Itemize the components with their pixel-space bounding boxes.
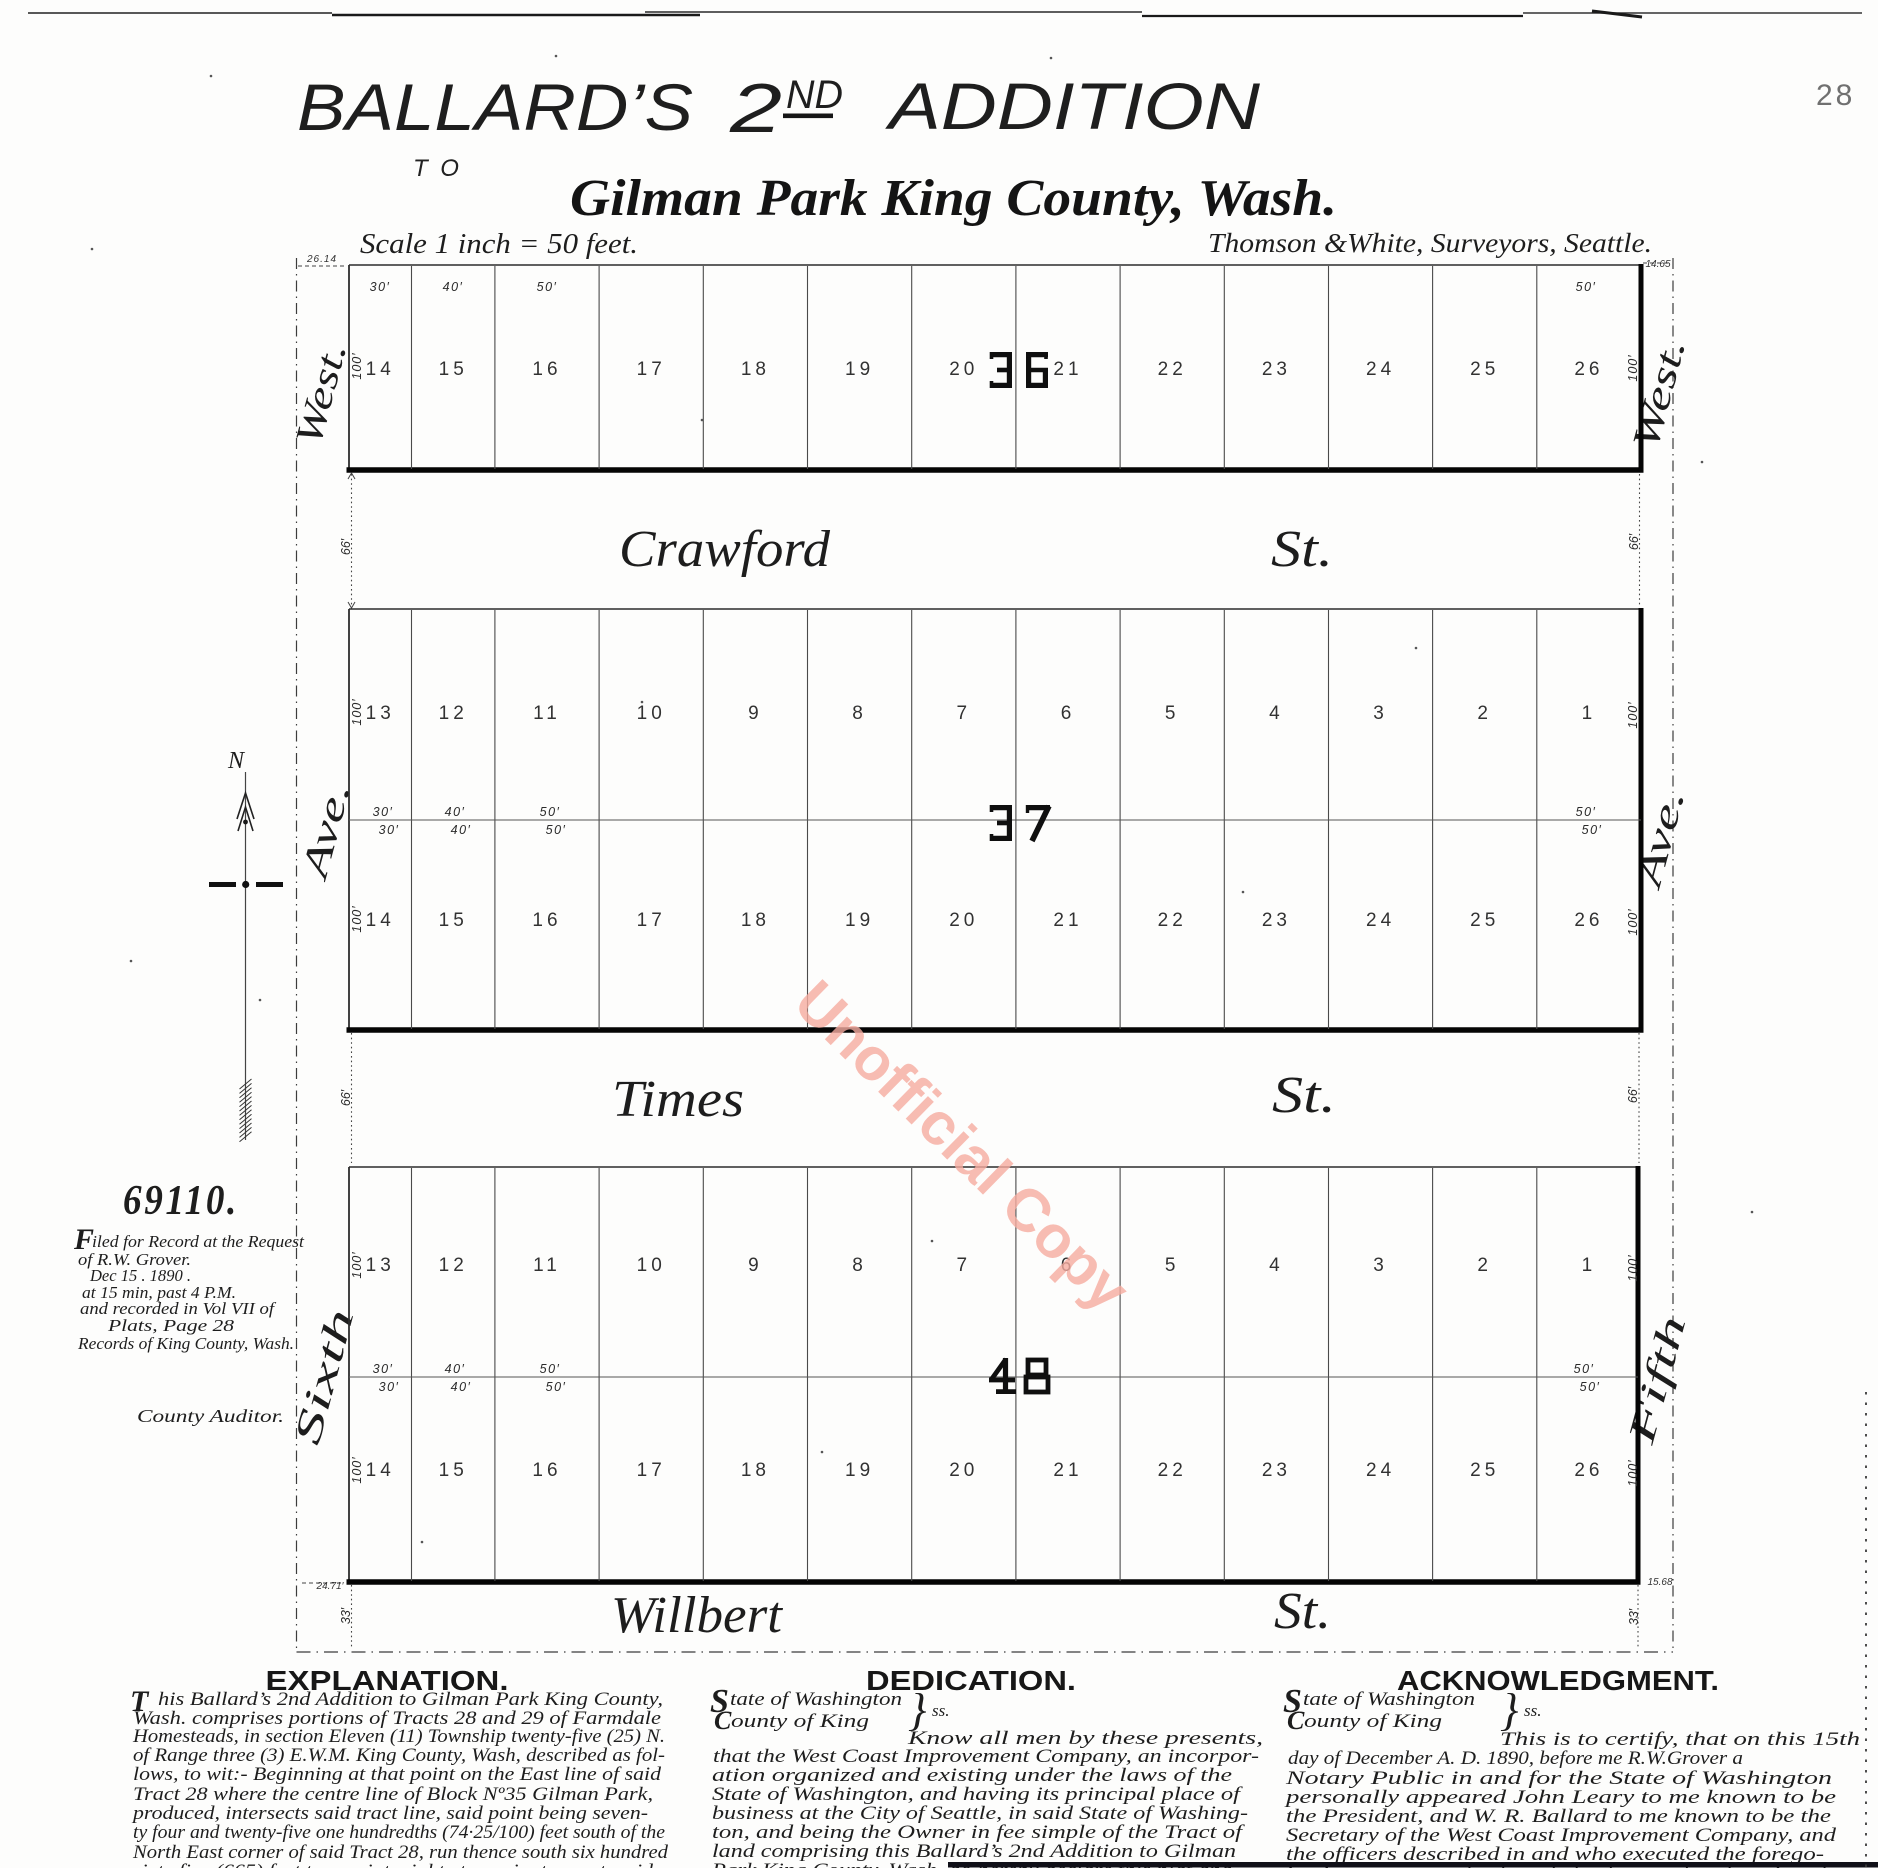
svg-text:100′: 100′ (350, 698, 364, 725)
svg-text:13: 13 (366, 1255, 395, 1276)
svg-text:15: 15 (439, 1460, 468, 1481)
svg-text:St.: St. (1274, 1583, 1331, 1640)
svg-text:5: 5 (1165, 1255, 1180, 1276)
svg-text:lows, to wit:- Beginning at th: lows, to wit:- Beginning at that point o… (133, 1764, 662, 1785)
svg-text:50′: 50′ (546, 823, 567, 837)
svg-text:ty four and twenty-five one hu: ty four and twenty-five one hundredths (… (133, 1822, 665, 1843)
svg-text:ation organized and existing u: ation organized and existing under the l… (712, 1765, 1232, 1786)
svg-text:26.14: 26.14 (306, 254, 337, 265)
svg-text:C: C (714, 1706, 732, 1735)
svg-text:tate of Washington: tate of Washington (1303, 1689, 1475, 1710)
svg-text:17: 17 (637, 1460, 666, 1481)
svg-text:6: 6 (1061, 703, 1076, 724)
svg-text:25: 25 (1470, 910, 1499, 931)
svg-text:66′: 66′ (339, 1089, 353, 1106)
svg-text:17: 17 (637, 910, 666, 931)
svg-text:100′: 100′ (350, 1251, 364, 1278)
svg-text:23: 23 (1262, 359, 1291, 380)
svg-text:15: 15 (439, 359, 468, 380)
svg-text:2: 2 (729, 69, 782, 147)
svg-text:10: 10 (637, 1255, 666, 1276)
svg-text:26: 26 (1574, 910, 1603, 931)
svg-text:3: 3 (1373, 1255, 1388, 1276)
svg-text:100′: 100′ (1626, 908, 1640, 935)
svg-text:30′: 30′ (379, 823, 400, 837)
svg-text:the officers described in and: the officers described in and who execut… (1286, 1844, 1824, 1865)
svg-text:9: 9 (748, 1255, 763, 1276)
svg-text:18: 18 (741, 910, 770, 931)
svg-text:22: 22 (1158, 910, 1187, 931)
svg-text:County Auditor.: County Auditor. (137, 1406, 284, 1426)
svg-text:that the West Coast Improvemen: that the West Coast Improvement Company,… (713, 1746, 1259, 1767)
svg-text:50′: 50′ (1576, 805, 1597, 819)
svg-text:1: 1 (1582, 703, 1597, 724)
svg-text:15: 15 (439, 910, 468, 931)
svg-text:day of December A. D. 1890, be: day of December A. D. 1890, before me R.… (1288, 1748, 1743, 1769)
svg-text:40′: 40′ (445, 805, 466, 819)
svg-text:7: 7 (957, 703, 972, 724)
svg-text:2: 2 (1477, 703, 1492, 724)
svg-text:21: 21 (1053, 359, 1082, 380)
svg-text:7: 7 (957, 1255, 972, 1276)
svg-text:25: 25 (1470, 359, 1499, 380)
svg-text:23: 23 (1262, 910, 1291, 931)
svg-text:19: 19 (845, 910, 874, 931)
svg-text:33′: 33′ (339, 1607, 353, 1624)
svg-text:Records of King County, Wash.: Records of King County, Wash. (77, 1334, 294, 1353)
svg-text:66′: 66′ (1627, 533, 1641, 550)
svg-text:12: 12 (439, 1255, 468, 1276)
svg-text:17: 17 (637, 359, 666, 380)
svg-text:66′: 66′ (1626, 1086, 1640, 1103)
svg-text:personally appeared John Leary: personally appeared John Leary to me kno… (1283, 1787, 1836, 1808)
svg-text:1: 1 (1582, 1255, 1597, 1276)
svg-text:13: 13 (366, 703, 395, 724)
svg-text:28: 28 (1816, 79, 1855, 112)
svg-text:18: 18 (741, 359, 770, 380)
svg-text:produced, intersects said trac: produced, intersects said tract line, sa… (131, 1803, 648, 1824)
svg-text:24.71′: 24.71′ (316, 1581, 345, 1592)
svg-text:21: 21 (1053, 910, 1082, 931)
svg-text:16: 16 (532, 359, 561, 380)
svg-text:2: 2 (1477, 1255, 1492, 1276)
svg-text:100′: 100′ (350, 1456, 364, 1483)
svg-text:24: 24 (1366, 1460, 1395, 1481)
svg-text:30′: 30′ (379, 1380, 400, 1394)
svg-text:16: 16 (532, 1460, 561, 1481)
svg-text:C: C (1287, 1706, 1305, 1735)
svg-text:100′: 100′ (350, 352, 364, 379)
svg-text:19: 19 (845, 1460, 874, 1481)
svg-text:St.: St. (1271, 521, 1333, 578)
svg-text:22: 22 (1158, 1460, 1187, 1481)
svg-text:}: } (1500, 1684, 1518, 1735)
svg-text:20: 20 (949, 910, 978, 931)
svg-text:West.: West. (1625, 334, 1695, 453)
svg-text:21: 21 (1053, 1460, 1082, 1481)
svg-text:24: 24 (1366, 359, 1395, 380)
svg-text:24: 24 (1366, 910, 1395, 931)
svg-text:30′: 30′ (373, 805, 394, 819)
svg-text:land comprising this Ballard’s: land comprising this Ballard’s 2nd Addit… (712, 1841, 1236, 1862)
svg-text:100′: 100′ (350, 905, 364, 932)
svg-text:ton, and being the Owner in fe: ton, and being the Owner in fee simple o… (712, 1822, 1246, 1843)
svg-text:Scale 1 inch = 50 feet.: Scale 1 inch = 50 feet. (360, 229, 638, 260)
svg-text:Secretary of the West Coast Im: Secretary of the West Coast Improvement … (1286, 1825, 1837, 1846)
svg-text:100′: 100′ (1626, 354, 1640, 381)
svg-text:3: 3 (1373, 703, 1388, 724)
svg-text:20: 20 (949, 1460, 978, 1481)
svg-text:ADDITION: ADDITION (884, 69, 1260, 143)
svg-text:100′: 100′ (1626, 701, 1640, 728)
svg-text:TO: TO (413, 155, 472, 182)
svg-text:BALLARD’S: BALLARD’S (297, 70, 693, 144)
svg-text:tate of Washington: tate of Washington (730, 1689, 902, 1710)
svg-text:14.65: 14.65 (1645, 259, 1670, 270)
svg-text:50′: 50′ (546, 1380, 567, 1394)
svg-text:9: 9 (748, 703, 763, 724)
svg-text:30′: 30′ (373, 1362, 394, 1376)
svg-text:Notary Public in and for the S: Notary Public in and for the State of Wa… (1285, 1768, 1832, 1789)
svg-text:of Range three (3) E.W.M. King: of Range three (3) E.W.M. King County, W… (133, 1745, 665, 1766)
svg-text:69110.: 69110. (123, 1178, 239, 1224)
svg-text:40′: 40′ (451, 823, 472, 837)
svg-text:North East corner of said Trac: North East corner of said Tract 28, run … (132, 1842, 669, 1863)
svg-text:ND: ND (786, 73, 843, 117)
svg-text:Fifth: Fifth (1620, 1312, 1695, 1450)
svg-text:16: 16 (532, 910, 561, 931)
svg-text:ss.: ss. (1524, 1701, 1541, 1720)
svg-text:4: 4 (1269, 1255, 1284, 1276)
svg-text:66′: 66′ (339, 538, 353, 555)
svg-text:4: 4 (1269, 703, 1284, 724)
svg-text:N: N (227, 748, 246, 774)
svg-text:15.68: 15.68 (1647, 1577, 1672, 1588)
svg-text:Tract 28 where the centre line: Tract 28 where the centre line of Block … (133, 1784, 653, 1805)
svg-text:19: 19 (845, 359, 874, 380)
svg-text:14: 14 (366, 359, 395, 380)
svg-text:100′: 100′ (1626, 1459, 1640, 1486)
svg-text:ss.: ss. (932, 1701, 949, 1720)
svg-text:his Ballard’s 2nd Addition to: his Ballard’s 2nd Addition to Gilman Par… (158, 1689, 663, 1710)
svg-text:8: 8 (852, 703, 867, 724)
svg-text:50′: 50′ (1574, 1362, 1595, 1376)
svg-text:Gilman Park King County, Wash.: Gilman Park King County, Wash. (570, 170, 1337, 227)
svg-text:50′: 50′ (540, 1362, 561, 1376)
svg-text:50′: 50′ (1582, 823, 1603, 837)
svg-text:8: 8 (852, 1255, 867, 1276)
svg-text:Willbert: Willbert (611, 1587, 784, 1644)
svg-text:100′: 100′ (1626, 1254, 1640, 1281)
svg-text:sixty five (665) feet to a poi: sixty five (665) feet to a point, eighty… (133, 1861, 654, 1868)
svg-text:40′: 40′ (443, 280, 464, 294)
svg-text:11: 11 (533, 1255, 561, 1276)
svg-text:40′: 40′ (451, 1380, 472, 1394)
svg-text:25: 25 (1470, 1460, 1499, 1481)
svg-text:Homesteads, in section Eleven: Homesteads, in section Eleven (11) Towns… (132, 1726, 665, 1747)
svg-text:10: 10 (637, 703, 666, 724)
svg-text:Times: Times (612, 1071, 744, 1128)
svg-text:Ave.: Ave. (1626, 785, 1693, 895)
svg-text:50′: 50′ (1576, 280, 1597, 294)
svg-text:11: 11 (533, 703, 561, 724)
svg-text:ounty of King: ounty of King (1304, 1711, 1442, 1732)
svg-text:business at the City of Seattl: business at the City of Seattle, in said… (712, 1803, 1248, 1824)
svg-text:the President, and W. R. Balla: the President, and W. R. Ballard to me k… (1286, 1806, 1831, 1827)
svg-text:23: 23 (1262, 1460, 1291, 1481)
svg-text:St.: St. (1272, 1067, 1336, 1124)
svg-text:ounty of King: ounty of King (731, 1711, 869, 1732)
svg-text:12: 12 (439, 703, 468, 724)
svg-text:14: 14 (366, 910, 395, 931)
svg-text:30′: 30′ (370, 280, 391, 294)
svg-text:iled for Record at the Request: iled for Record at the Request (92, 1232, 305, 1251)
svg-text:Plats, Page 28: Plats, Page 28 (107, 1316, 235, 1335)
svg-text:50′: 50′ (540, 805, 561, 819)
svg-text:State of Washington, and havin: State of Washington, and having its prin… (712, 1784, 1244, 1805)
svg-text:Thomson &White, Surveyors, Sea: Thomson &White, Surveyors, Seattle. (1208, 228, 1652, 258)
svg-text:5: 5 (1165, 703, 1180, 724)
svg-text:Crawford: Crawford (619, 521, 831, 578)
svg-text:26: 26 (1574, 1460, 1603, 1481)
svg-text:20: 20 (949, 359, 978, 380)
svg-text:26: 26 (1574, 359, 1603, 380)
svg-text:18: 18 (741, 1460, 770, 1481)
svg-text:40′: 40′ (445, 1362, 466, 1376)
svg-text:West.: West. (288, 338, 355, 449)
svg-text:50′: 50′ (1580, 1380, 1601, 1394)
svg-text:33′: 33′ (1627, 1608, 1641, 1625)
svg-text:14: 14 (366, 1460, 395, 1481)
svg-text:This is to certify, that on th: This is to certify, that on this 15th (1500, 1729, 1860, 1750)
svg-text:22: 22 (1158, 359, 1187, 380)
svg-text:50′: 50′ (537, 280, 558, 294)
